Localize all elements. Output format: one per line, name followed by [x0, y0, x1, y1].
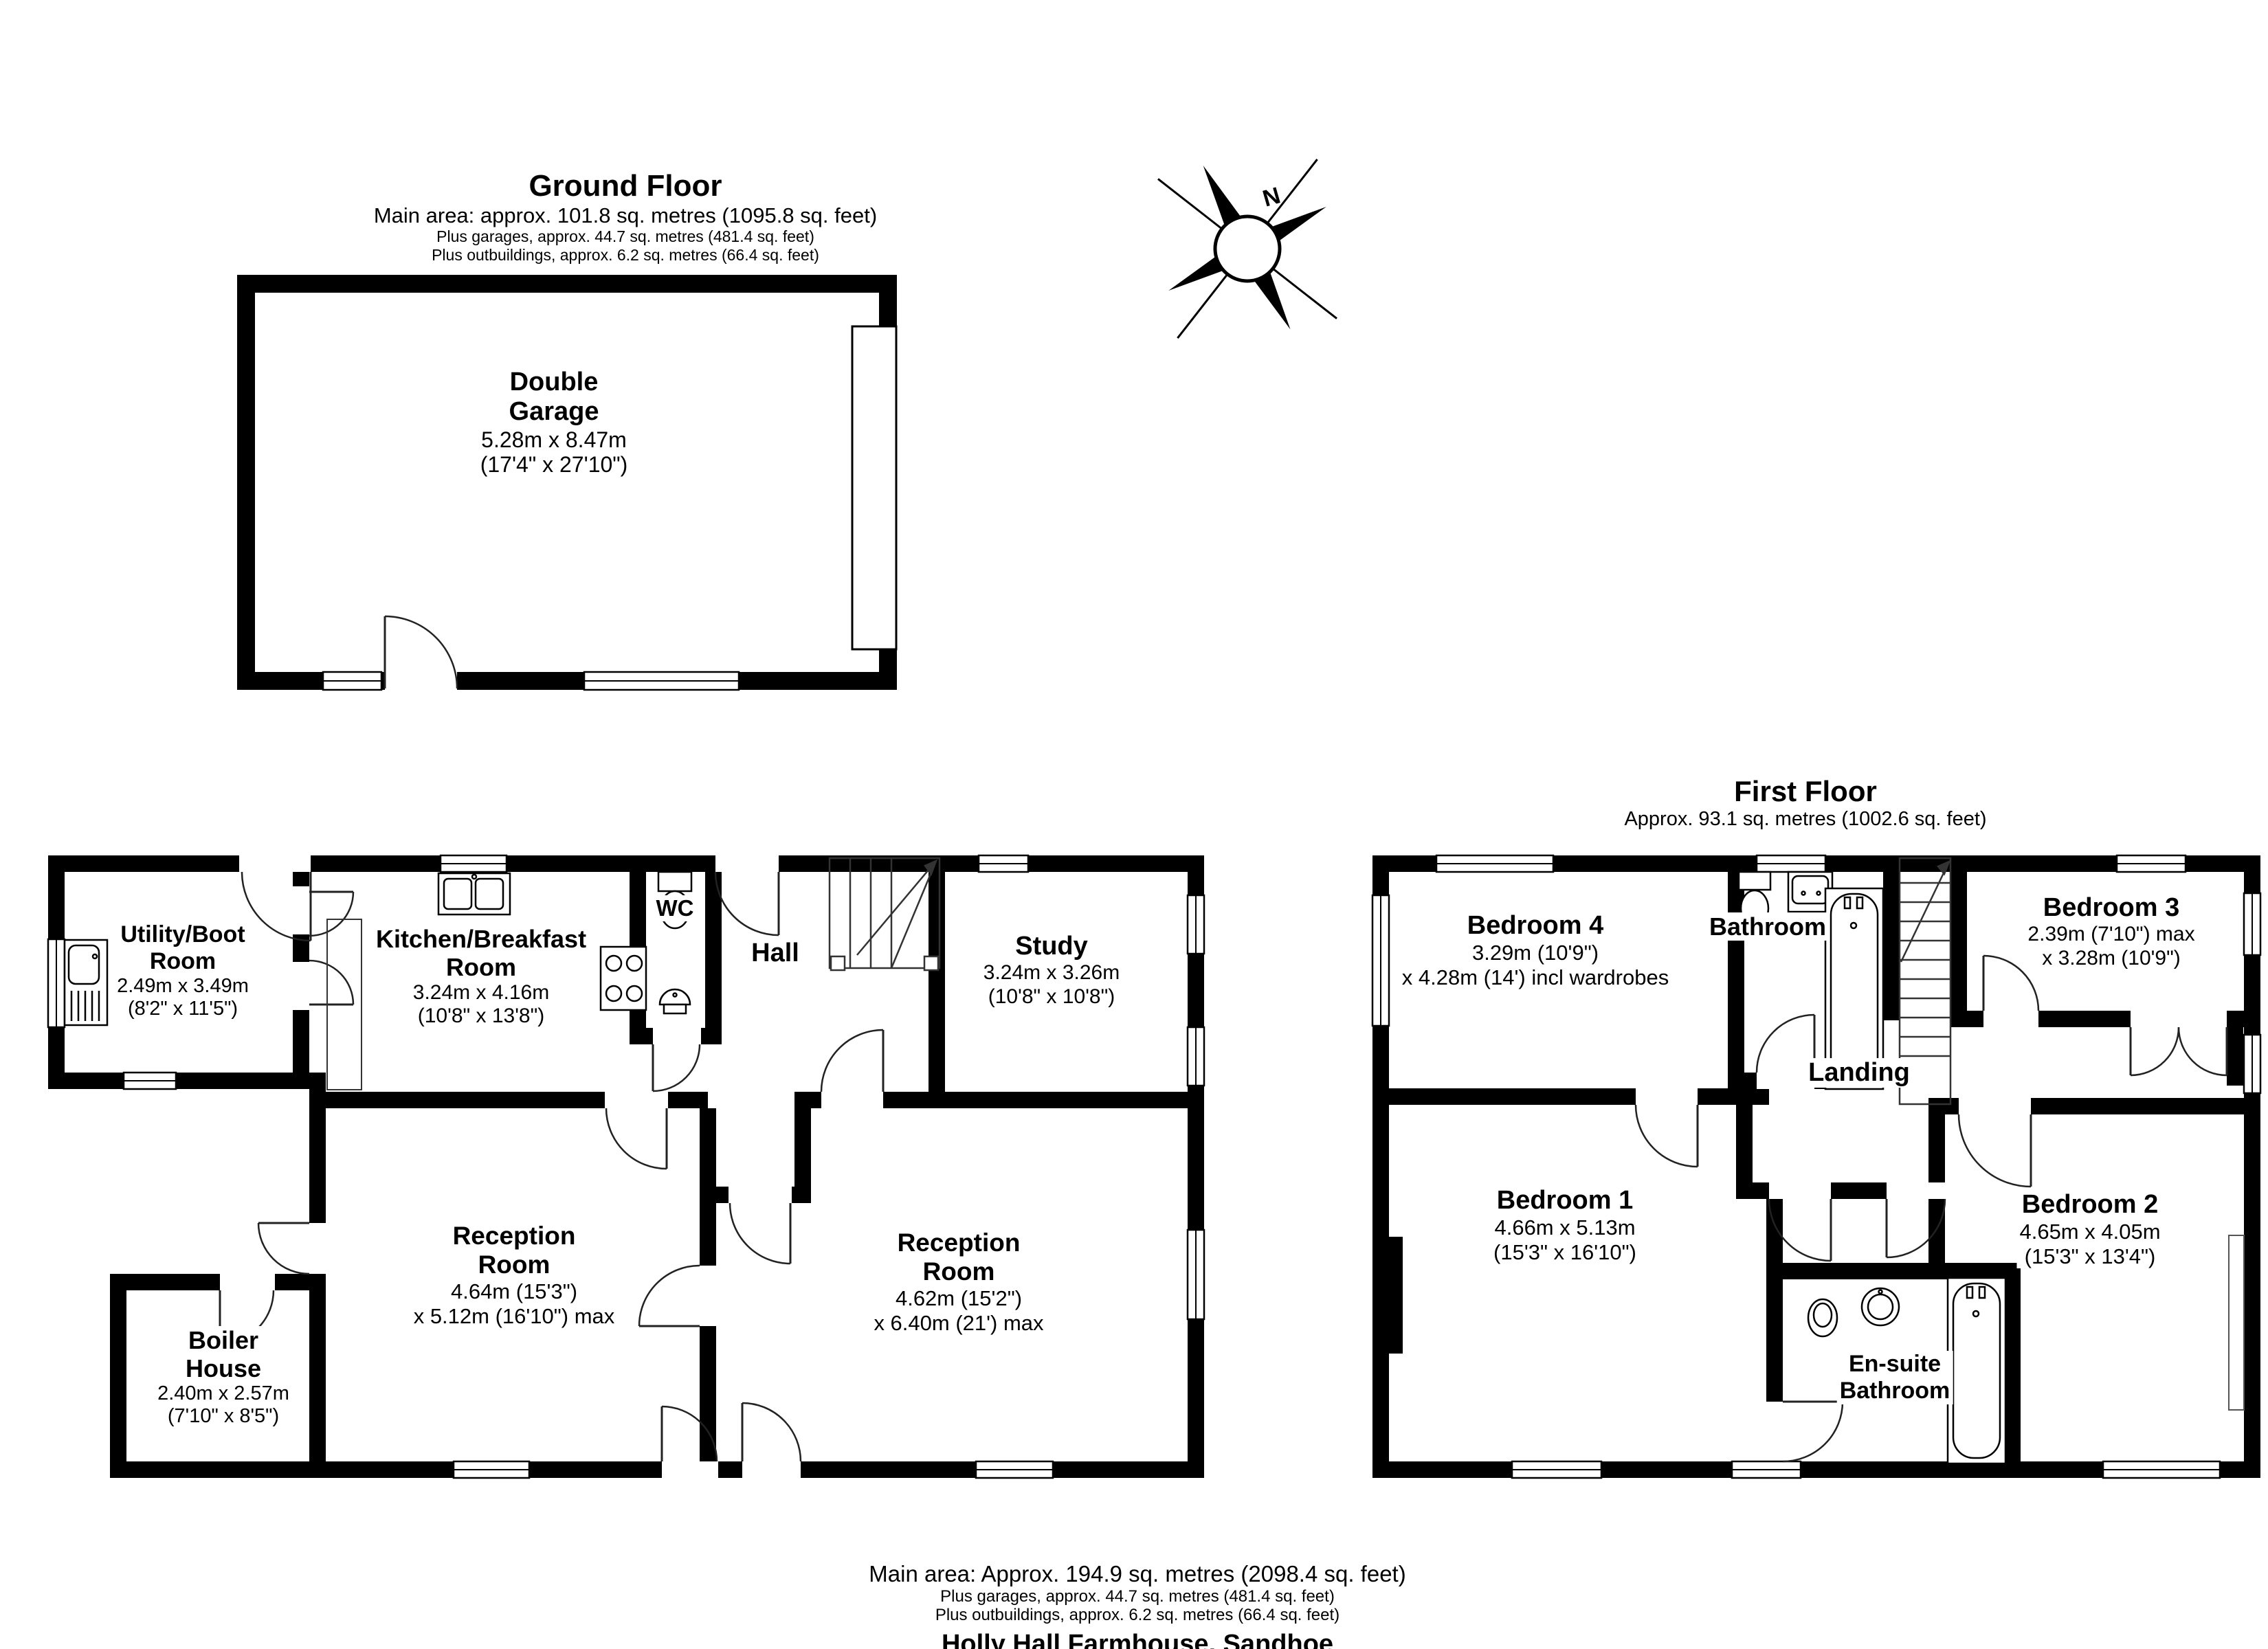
bedroom1-label: Bedroom 1 4.66m x 5.13m (15'3" x 16'10") — [1491, 1186, 1639, 1264]
garage-door-panel — [852, 326, 896, 649]
footer-area: Main area: Approx. 194.9 sq. metres (209… — [866, 1561, 1408, 1587]
kitchen-label: Kitchen/Breakfast Room 3.24m x 4.16m (10… — [373, 925, 589, 1028]
ensuite-tub-icon — [1948, 1278, 2005, 1463]
walls-layer — [48, 275, 2260, 1478]
boiler-house-label: Boiler House 2.40m x 2.57m (7'10" x 8'5"… — [155, 1326, 292, 1428]
kitchen-stove-icon — [601, 947, 646, 1010]
bedroom3-label: Bedroom 3 2.39m (7'10") max x 3.28m (10'… — [2025, 893, 2197, 970]
ensuite-toilet-icon — [1808, 1299, 1837, 1336]
ensuite-sink-icon — [1862, 1288, 1899, 1325]
door-arcs-layer — [220, 616, 2227, 1461]
ensuite-label: En-suite Bathroom — [1837, 1351, 1953, 1404]
utility-sink-icon — [65, 940, 107, 1025]
reception-left-label: Reception Room 4.64m (15'3") x 5.12m (16… — [411, 1222, 618, 1328]
footer-block: Main area: Approx. 194.9 sq. metres (209… — [866, 1561, 1408, 1649]
bedroom2-label: Bedroom 2 4.65m x 4.05m (15'3" x 13'4") — [2016, 1190, 2163, 1268]
bathroom-label: Bathroom — [1706, 912, 1829, 941]
bedroom4-label: Bedroom 4 3.29m (10'9") x 4.28m (14') in… — [1399, 911, 1671, 989]
first-floor-title: First Floor — [1621, 775, 1989, 808]
floorplan-page: Ground Floor Main area: approx. 101.8 sq… — [0, 0, 2268, 1649]
utility-room-label: Utility/Boot Room 2.49m x 3.49m (8'2" x … — [114, 921, 252, 1020]
first-floor-title-block: First Floor Approx. 93.1 sq. metres (100… — [1621, 775, 1989, 831]
ground-floor-title: Ground Floor — [371, 169, 880, 203]
wc-label: WC — [654, 895, 697, 921]
hall-label: Hall — [748, 939, 802, 968]
kitchen-sink-icon — [438, 873, 510, 915]
first-floor-area: Approx. 93.1 sq. metres (1002.6 sq. feet… — [1621, 808, 1989, 831]
garage-label: Double Garage 5.28m x 8.47m (17'4" x 27'… — [478, 368, 631, 478]
footer-garages: Plus garages, approx. 44.7 sq. metres (4… — [866, 1587, 1408, 1606]
ground-floor-outbuildings: Plus outbuildings, approx. 6.2 sq. metre… — [371, 246, 880, 264]
reception-right-label: Reception Room 4.62m (15'2") x 6.40m (21… — [871, 1229, 1046, 1335]
landing-label: Landing — [1805, 1058, 1913, 1088]
footer-outbuildings: Plus outbuildings, approx. 6.2 sq. metre… — [866, 1606, 1408, 1624]
study-label: Study 3.24m x 3.26m (10'8" x 10'8") — [981, 932, 1122, 1009]
wc-basin-icon — [660, 989, 690, 1013]
compass-icon — [1088, 89, 1406, 407]
ground-floor-area: Main area: approx. 101.8 sq. metres (109… — [371, 203, 880, 227]
ground-floor-garages: Plus garages, approx. 44.7 sq. metres (4… — [371, 227, 880, 245]
ground-stairs — [830, 858, 940, 970]
ground-floor-title-block: Ground Floor Main area: approx. 101.8 sq… — [371, 169, 880, 264]
footer-property-name: Holly Hall Farmhouse, Sandhoe — [866, 1630, 1408, 1649]
bedroom2-bay-recess — [2229, 1235, 2244, 1410]
